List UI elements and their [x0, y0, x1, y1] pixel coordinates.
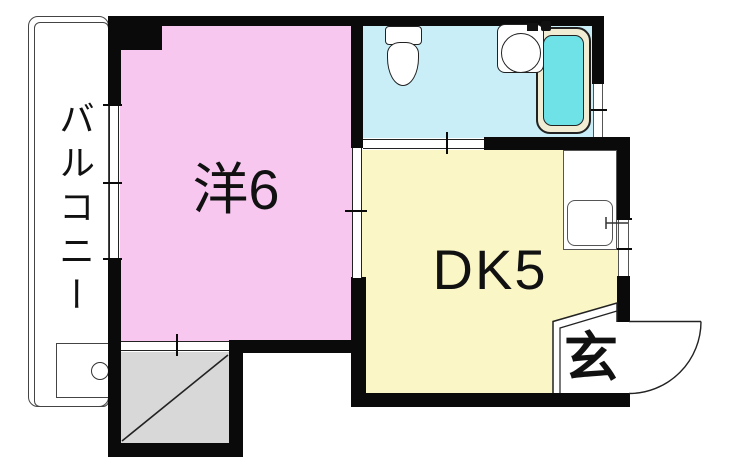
faucet-icon — [527, 23, 538, 31]
wall-segment — [351, 16, 363, 148]
faucet-icon — [541, 21, 551, 31]
wall-segment — [617, 276, 630, 322]
window-tick — [103, 258, 122, 260]
entry-door-swing-arc — [629, 322, 701, 394]
sliding-door-closet — [121, 341, 229, 351]
floorplan: バルコニー 洋6 DK5 玄 — [0, 0, 734, 469]
wall-segment — [617, 137, 630, 218]
window-tick — [103, 104, 122, 106]
sliding-door-western-dk — [352, 148, 362, 278]
window-dk-east-wall — [618, 218, 629, 276]
door-tick — [446, 132, 448, 154]
wall-segment — [592, 16, 604, 84]
western-room-label: 洋6 — [120, 152, 352, 228]
balcony-label: バルコニー — [48, 100, 100, 380]
wall-segment — [229, 340, 366, 353]
wall-segment — [108, 443, 243, 457]
wall-segment — [229, 340, 243, 457]
bathtub-water — [543, 35, 584, 126]
wall-segment — [108, 16, 121, 106]
wall-segment — [351, 393, 630, 407]
washbasin-bowl — [501, 33, 541, 73]
door-tick — [176, 334, 178, 356]
wall-segment — [484, 137, 630, 150]
dining-kitchen-label: DK5 — [362, 234, 618, 306]
sliding-door-bathroom-dk — [363, 139, 484, 149]
wall-segment — [108, 260, 121, 457]
closet-floor — [121, 352, 229, 444]
entrance-label: 玄 — [556, 322, 626, 394]
